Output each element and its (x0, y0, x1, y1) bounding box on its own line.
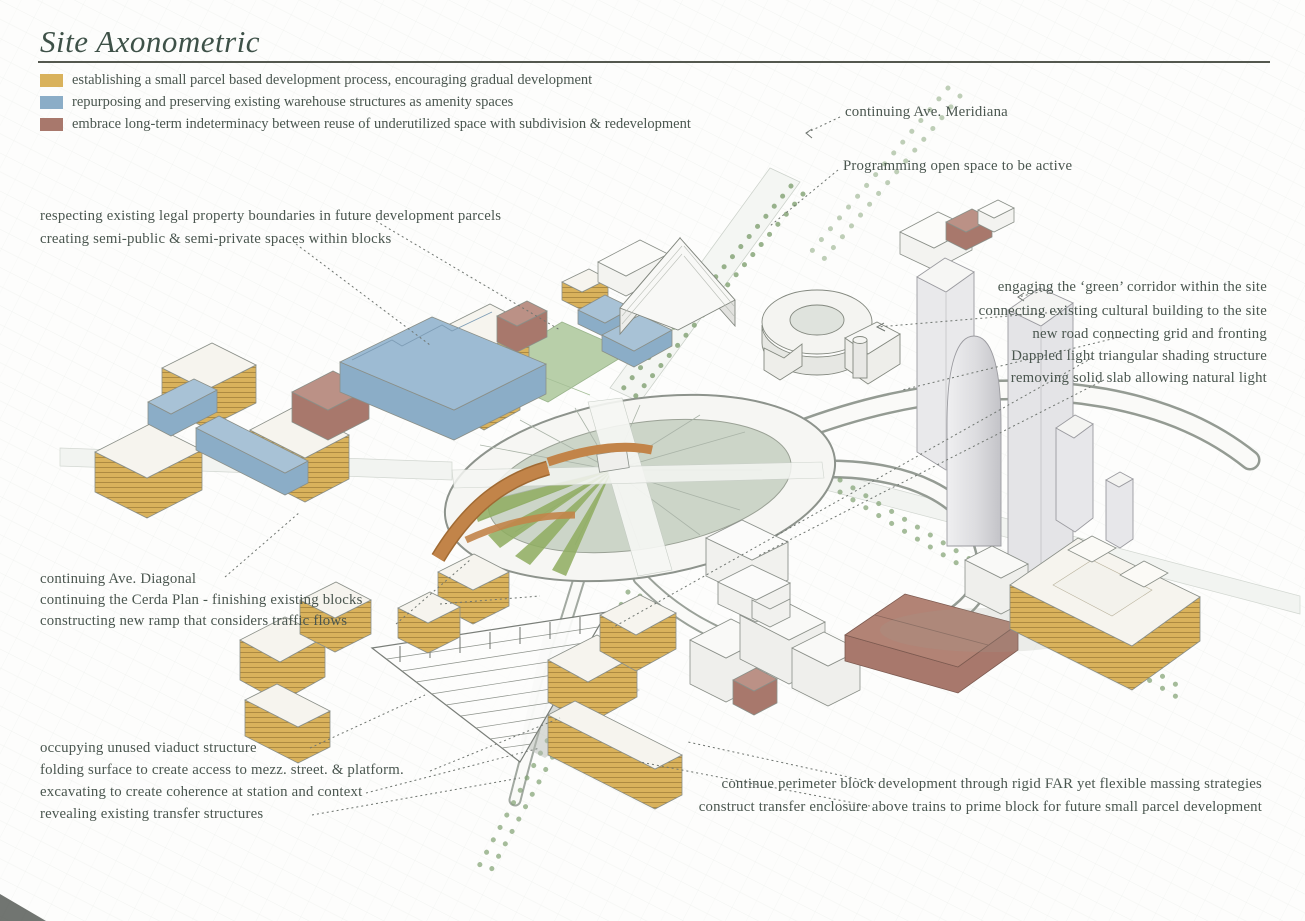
legend-item-parcel: establishing a small parcel based develo… (40, 69, 691, 91)
annotation-green-corridor: engaging the ‘green’ corridor within the… (998, 279, 1267, 296)
annotation-new-road: new road connecting grid and fronting (1032, 326, 1267, 343)
title-rule (38, 61, 1270, 63)
annotation-cultural-building: connecting existing cultural building to… (979, 303, 1267, 320)
legend-label: repurposing and preserving existing ware… (72, 94, 513, 111)
annotation-transfer-enclosure: construct transfer enclosure above train… (699, 799, 1262, 816)
presentation-board: Site Axonometric establishing a small pa… (0, 0, 1305, 921)
legend-swatch-brown (40, 118, 63, 131)
annotation-diagonal: continuing Ave. Diagonal (40, 571, 196, 588)
annotation-boundaries: respecting existing legal property bound… (40, 208, 501, 225)
legend-label: establishing a small parcel based develo… (72, 72, 592, 89)
legend-label: embrace long-term indeterminacy between … (72, 116, 691, 133)
annotation-open-space: Programming open space to be active (843, 158, 1072, 175)
legend-item-reuse: embrace long-term indeterminacy between … (40, 113, 691, 135)
annotation-cerda-plan: continuing the Cerda Plan - finishing ex… (40, 592, 363, 609)
annotation-folding-surface: folding surface to create access to mezz… (40, 762, 404, 779)
annotation-viaduct: occupying unused viaduct structure (40, 740, 257, 757)
legend-item-warehouse: repurposing and preserving existing ware… (40, 91, 691, 113)
annotation-semi-public: creating semi-public & semi-private spac… (40, 231, 391, 248)
annotation-perimeter-block: continue perimeter block development thr… (722, 776, 1262, 793)
annotation-excavating: excavating to create coherence at statio… (40, 784, 362, 801)
legend-swatch-yellow (40, 74, 63, 87)
annotation-meridiana: continuing Ave. Meridiana (845, 104, 1008, 121)
annotation-solid-slab: removing solid slab allowing natural lig… (1011, 370, 1267, 387)
legend: establishing a small parcel based develo… (40, 69, 691, 135)
legend-swatch-blue (40, 96, 63, 109)
annotation-revealing: revealing existing transfer structures (40, 806, 263, 823)
page-title: Site Axonometric (40, 24, 260, 60)
annotation-new-ramp: constructing new ramp that considers tra… (40, 613, 347, 630)
annotation-dappled-light: Dappled light triangular shading structu… (1011, 348, 1267, 365)
